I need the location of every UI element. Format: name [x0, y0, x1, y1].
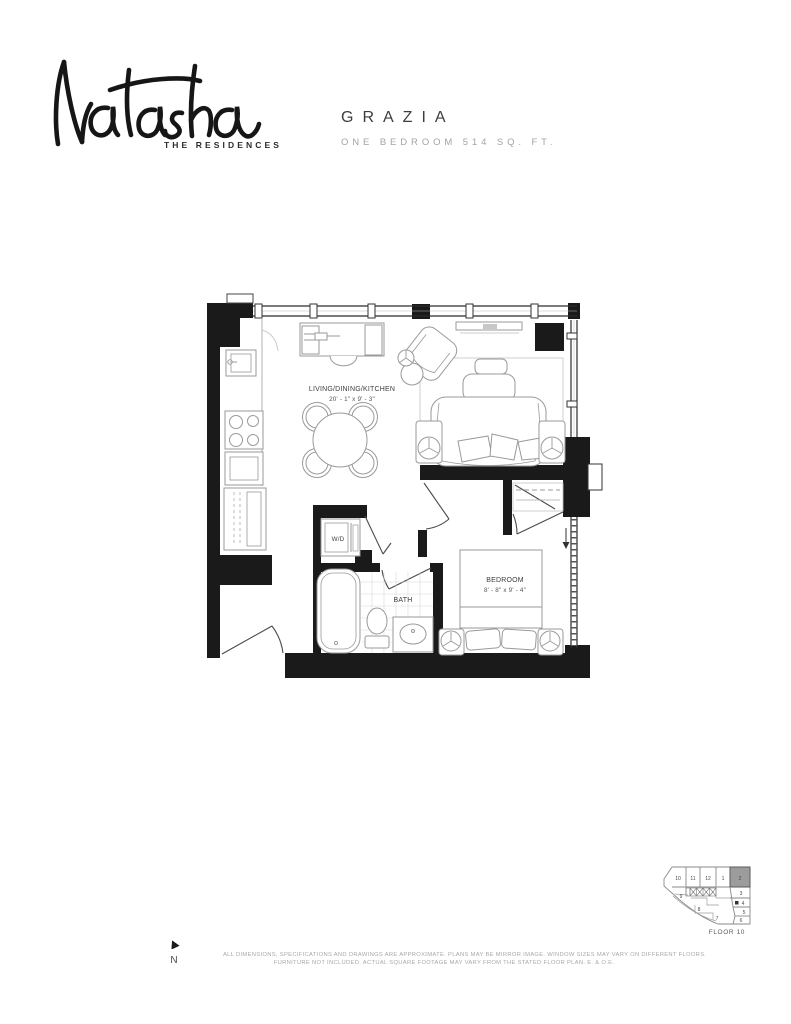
kitchen-fixtures: [224, 318, 278, 550]
plan-name: GRAZIA: [341, 109, 455, 127]
sofa: [431, 397, 546, 466]
fridge: [224, 488, 266, 550]
dining-table: [313, 413, 367, 467]
bath-sink: [393, 617, 433, 652]
hall-door: [424, 483, 449, 529]
svg-text:12: 12: [705, 876, 711, 882]
bath-door: [382, 568, 431, 589]
disclaimer-line-2: FURNITURE NOT INCLUDED. ACTUAL SQUARE FO…: [223, 959, 665, 967]
compass-label: N: [165, 955, 183, 966]
entry-door: [222, 626, 283, 654]
bedroom-closet: [513, 483, 563, 511]
logo-script: Natasha: [52, 58, 284, 150]
svg-text:10: 10: [675, 876, 681, 882]
wall-notch: [227, 294, 253, 303]
kitchen-sink: [226, 350, 256, 376]
svg-text:8: 8: [698, 907, 701, 913]
logo-subtitle: THE RESIDENCES: [150, 140, 282, 150]
toilet: [365, 608, 389, 648]
closet-door: [515, 485, 555, 509]
keyplan-svg: 10 11 12 1 2 3 4 5 6 7 8 9: [661, 865, 753, 927]
right-window-wall: [567, 320, 577, 437]
disclaimer-line-1: ALL DIMENSIONS, SPECIFICATIONS AND DRAWI…: [223, 951, 665, 959]
side-table-left: [416, 421, 442, 463]
disclaimer: ALL DIMENSIONS, SPECIFICATIONS AND DRAWI…: [223, 951, 665, 968]
nightstand-left: [439, 629, 464, 655]
compass: N: [165, 936, 183, 966]
svg-text:11: 11: [690, 876, 695, 882]
nightstand-right: [538, 629, 563, 655]
ottoman: [463, 359, 515, 401]
structural-column: [535, 323, 564, 351]
logo-stroke: [56, 62, 64, 144]
room-label-bedroom: BEDROOM: [486, 577, 524, 584]
room-label-wd: W/D: [332, 536, 345, 543]
wd-door: [365, 516, 391, 554]
room-label-living: LIVING/DINING/KITCHEN: [309, 386, 395, 393]
svg-text:2: 2: [739, 876, 742, 882]
floorplan-page: Natasha THE RESIDENCES GRAZIA ONE BEDROO…: [0, 0, 791, 1024]
room-label-bath: BATH: [394, 597, 413, 604]
bathtub: [317, 569, 360, 653]
oven: [225, 452, 263, 485]
elevator-core: [686, 888, 716, 896]
pillow: [501, 629, 536, 650]
bathroom-fixtures: [317, 569, 433, 653]
keyplan-floor-label: FLOOR 10: [661, 929, 745, 936]
svg-text:4: 4: [742, 901, 745, 907]
down-arrow-icon: [563, 528, 570, 549]
top-window-wall: [253, 304, 577, 318]
side-table-right: [539, 421, 565, 463]
north-arrow-icon: [168, 940, 180, 949]
svg-text:9: 9: [680, 894, 683, 900]
desk: [300, 323, 384, 356]
exterior-box: [588, 464, 602, 490]
svg-text:1: 1: [722, 876, 725, 882]
cabinet-swing: [262, 330, 278, 351]
bed: [460, 550, 542, 650]
cooktop: [225, 411, 263, 449]
desk-chair: [330, 356, 357, 366]
room-dims-bedroom: 8' - 8" x 9' - 4": [484, 587, 526, 594]
stair-marker: [735, 901, 739, 905]
pillow: [465, 629, 501, 651]
bedroom-furniture: [439, 550, 563, 655]
plan-subtitle: ONE BEDROOM 514 SQ. FT.: [341, 137, 556, 148]
svg-text:6: 6: [740, 918, 743, 924]
bedroom-window: [571, 517, 577, 648]
tv: [456, 322, 522, 333]
floorplan-svg: LIVING/DINING/KITCHEN 20' - 1" x 9' - 3"…: [195, 285, 610, 685]
bedroom-door: [513, 512, 563, 534]
svg-text:5: 5: [743, 910, 746, 916]
room-dims-living: 20' - 1" x 9' - 3": [329, 396, 375, 403]
svg-text:3: 3: [740, 891, 743, 897]
svg-text:7: 7: [716, 916, 719, 922]
